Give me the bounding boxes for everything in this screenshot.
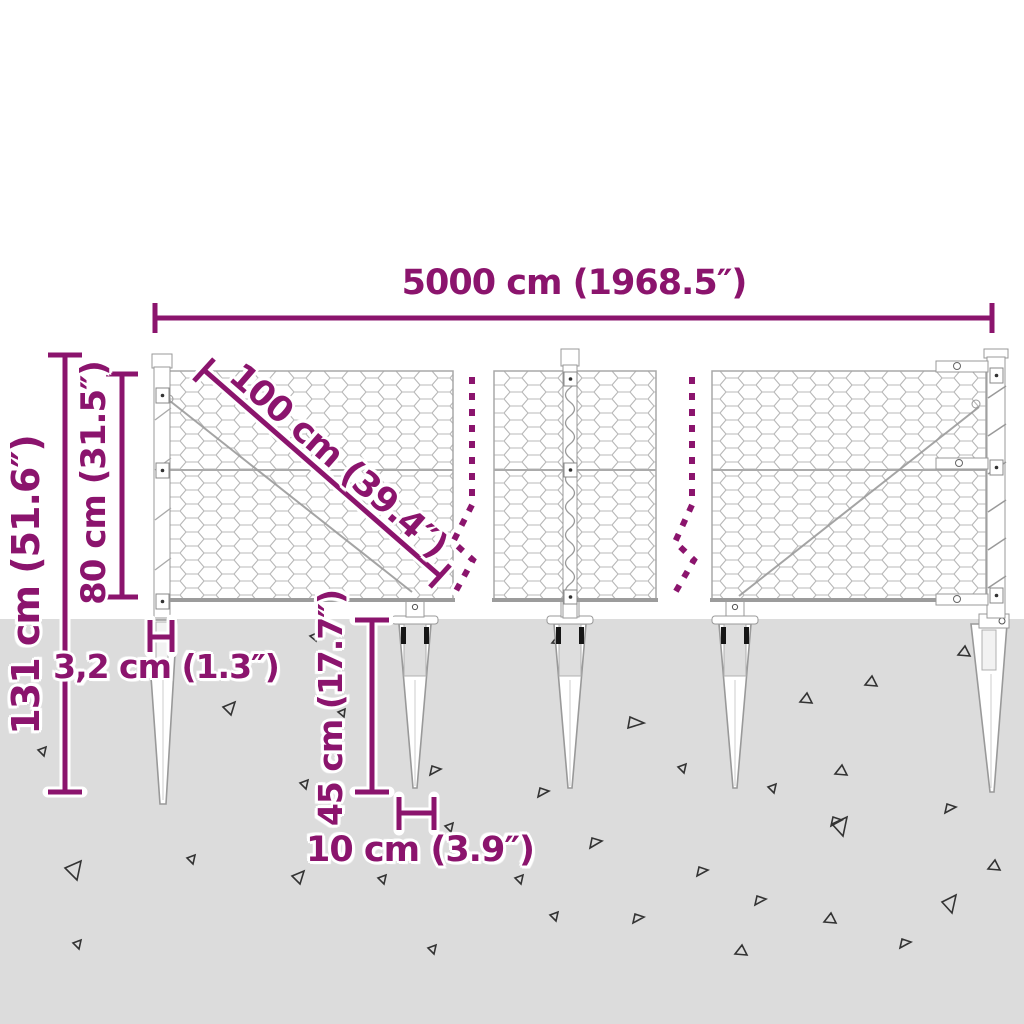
dimension-anchor-depth-label: 45 cm (17.7″) <box>309 468 353 948</box>
break-line-2 <box>672 377 694 598</box>
fence-post-1 <box>152 354 172 618</box>
dimension-overall-height-label: 131 cm (51.6″) <box>4 345 48 825</box>
fence-post-2 <box>561 349 579 618</box>
brace-arm <box>936 361 988 372</box>
brace-arm <box>936 594 988 605</box>
mesh-panel-3 <box>710 371 988 600</box>
dimension-total-width-line <box>155 303 992 333</box>
dimension-anchor-width-label: 10 cm (3.9″) <box>180 828 660 872</box>
product-dimension-diagram: 5000 cm (1968.5″) 131 cm (51.6″) 80 cm (… <box>0 0 1024 1024</box>
dimension-total-width-label: 5000 cm (1968.5″) <box>334 261 814 305</box>
